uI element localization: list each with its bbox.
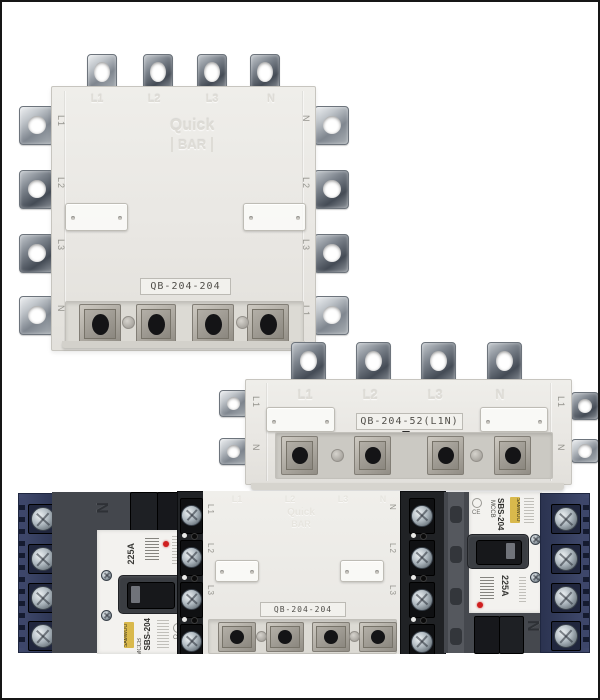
terminal-teeth	[19, 498, 25, 648]
breaker-model-label: SBS-204	[496, 498, 505, 530]
side-terminal-label: L2	[301, 177, 311, 189]
side-terminal-label: L2	[388, 543, 397, 554]
indicator-dot	[182, 533, 187, 538]
rating-label: 225A	[500, 575, 510, 597]
brand-tag: SAMWOO	[510, 497, 520, 523]
face-screw	[101, 610, 112, 621]
guide-dot	[256, 631, 267, 642]
middle-device-body: L1 L2 L3 N L1 N L1 N QB-204-52(L1N)	[245, 379, 572, 485]
side-tab	[450, 628, 462, 645]
emboss-terminal-label: N	[259, 93, 283, 105]
fine-print-lines	[157, 620, 169, 648]
screw-terminal	[411, 547, 433, 569]
port-hole	[230, 630, 244, 644]
connector-port	[266, 622, 304, 652]
lug-hole	[94, 62, 110, 82]
screw-terminal	[181, 505, 202, 526]
right-lug-column	[400, 491, 446, 654]
side-terminal-label: L3	[206, 585, 215, 596]
screw-terminal	[554, 586, 578, 610]
port-hole	[505, 447, 521, 464]
trip-indicator-led	[477, 602, 483, 608]
lug-hole	[496, 351, 513, 371]
side-terminal-label: L2	[206, 543, 215, 554]
emboss-brand-line1: Quick	[266, 507, 336, 518]
connector-port	[494, 436, 531, 475]
fine-print-lines	[519, 577, 526, 602]
port-hole	[438, 447, 454, 464]
cert-mark: CE	[472, 497, 482, 517]
lug-hole	[150, 62, 166, 82]
cert-label: CE	[472, 510, 480, 516]
emboss-terminal-label: N	[485, 387, 515, 402]
lug-hole	[578, 444, 592, 458]
terminal-lug	[19, 170, 54, 209]
clip-pin	[249, 216, 253, 220]
side-terminal-label: L1	[206, 504, 215, 515]
side-terminal-label: L1	[56, 115, 66, 127]
emboss-terminal-label: L3	[333, 494, 353, 504]
clip-pin	[375, 570, 379, 574]
connector-strip	[275, 432, 553, 479]
terminal-lug	[19, 296, 54, 335]
clip-pin	[250, 570, 254, 574]
lug-hole	[204, 62, 220, 82]
screw-terminal	[554, 507, 578, 531]
terminal-lug	[19, 234, 54, 273]
screw-terminal	[411, 631, 433, 653]
product-photo-frame: L1 L2 L3 N Quick BAR L1 L2 L3 N N L2 L3 …	[0, 0, 600, 700]
indicator-dot	[420, 575, 427, 582]
emboss-terminal-label: L3	[200, 93, 224, 105]
emboss-brand-line2: BAR	[266, 519, 336, 529]
terminal-lug	[356, 342, 391, 384]
clip-pin	[345, 570, 349, 574]
terminal-lug	[250, 54, 280, 90]
emboss-brand-bar: BAR	[171, 137, 213, 152]
terminal-lug	[87, 54, 117, 90]
rating-label: 225A	[126, 543, 136, 565]
breaker-model-label: SBS-204	[143, 618, 152, 650]
indicator-dot	[191, 575, 198, 582]
mounting-clip	[266, 407, 335, 432]
toggle-handle	[476, 540, 522, 565]
middle-device: L1 L2 L3 N L1 N L1 N QB-204-52(L1N)	[2, 332, 600, 492]
breaker-cap	[499, 616, 524, 654]
emboss-terminal-label: L1	[227, 494, 247, 504]
indicator-dot	[182, 575, 187, 580]
side-tab	[450, 588, 462, 605]
side-tab	[450, 546, 462, 563]
mounting-clip	[215, 560, 259, 582]
breaker-cap	[130, 492, 158, 533]
connector-port	[359, 622, 397, 652]
side-terminal-label: L3	[56, 239, 66, 251]
lug-hole	[323, 306, 341, 324]
side-terminal-label: N	[388, 504, 397, 511]
indicator-dot	[411, 575, 416, 580]
terminal-lug	[197, 54, 227, 90]
screw-terminal	[411, 505, 433, 527]
toggle-rating-tag	[131, 586, 140, 603]
connector-port	[218, 622, 256, 652]
terminal-lug	[571, 392, 599, 420]
indicator-dot	[191, 617, 198, 624]
model-label: QB-204-204	[260, 602, 346, 617]
lug-hole	[300, 351, 317, 371]
lug-hole	[227, 397, 240, 410]
trip-indicator-led	[163, 541, 169, 547]
breaker-toggle	[467, 534, 529, 569]
guide-dot	[349, 631, 360, 642]
indicator-dot	[411, 533, 416, 538]
lug-hole	[430, 351, 447, 371]
port-hole	[371, 630, 385, 644]
port-hole	[365, 447, 381, 464]
connector-port	[281, 436, 318, 475]
terminal-lug	[219, 390, 248, 417]
top-device-body: L1 L2 L3 N Quick BAR L1 L2 L3 N N L2 L3 …	[51, 86, 316, 351]
port-hole	[292, 447, 308, 464]
terminal-lug	[143, 54, 173, 90]
screw-terminal	[181, 547, 202, 568]
indicator-dot	[191, 533, 198, 540]
barcode	[145, 538, 159, 562]
breaker-type-label: MCCB	[489, 500, 495, 518]
bottom-assembly: N 225A SAMWOO MCCB SBS-204 CE	[14, 491, 590, 654]
model-label: QB-204-204	[140, 278, 231, 295]
indicator-dot	[411, 617, 416, 622]
left-lug-column	[177, 491, 205, 654]
side-terminal-label: N	[251, 444, 261, 452]
screw-terminal	[181, 589, 202, 610]
clip-pin	[71, 216, 75, 220]
side-terminal-label: L2	[56, 177, 66, 189]
emboss-terminal-label: L1	[85, 93, 109, 105]
side-terminal-label: L3	[388, 585, 397, 596]
emboss-brand-line1: Quick	[152, 117, 232, 135]
screw-terminal	[554, 624, 578, 648]
lug-hole	[323, 244, 341, 262]
terminal-lug	[421, 342, 456, 384]
terminal-lug	[19, 106, 54, 145]
model-label: QB-204-52(L1N)	[356, 413, 463, 430]
emboss-terminal-label: L2	[142, 93, 166, 105]
mounting-clip	[340, 560, 384, 582]
terminal-lug	[314, 234, 349, 273]
toggle-rating-tag	[506, 543, 515, 559]
barcode	[480, 577, 494, 600]
terminal-lug	[314, 296, 349, 335]
face-screw	[101, 570, 112, 581]
right-terminal-block	[540, 493, 590, 653]
clip-pin	[272, 420, 276, 424]
indicator-dot	[420, 617, 427, 624]
clip-pin	[538, 420, 542, 424]
guide-dot	[470, 449, 483, 462]
emboss-terminal-label: L3	[420, 387, 450, 402]
mounting-clip	[243, 203, 306, 231]
lug-hole	[28, 306, 46, 324]
screw-terminal	[554, 547, 578, 571]
brand-tag: SAMWOO	[124, 622, 134, 648]
terminal-lug	[219, 438, 248, 465]
side-terminal-label: L1	[251, 396, 261, 408]
emboss-terminal-label: L2	[280, 494, 300, 504]
lug-hole	[323, 116, 341, 134]
right-breaker: CE SBS-204 MCCB SAMWOO 225A N	[444, 492, 542, 653]
guide-dot	[331, 449, 344, 462]
lug-hole	[365, 351, 382, 371]
clip-pin	[296, 216, 300, 220]
emboss-terminal-label: N	[373, 494, 393, 504]
breaker-toggle	[118, 575, 182, 614]
terminal-lug	[571, 439, 599, 463]
lug-hole	[323, 180, 341, 198]
emboss-brand-line2: BAR	[152, 137, 232, 152]
breaker-cap	[474, 616, 500, 654]
breaker-face: CE SBS-204 MCCB SAMWOO 225A	[469, 492, 542, 613]
terminal-teeth	[583, 498, 589, 648]
fine-print-lines	[524, 498, 534, 524]
center-device: L1 L2 L3 N Quick BAR L1 L2 L3 N N L2 L3 …	[203, 491, 400, 654]
side-terminal-label: N	[556, 444, 566, 452]
terminal-lug	[314, 170, 349, 209]
terminal-lug	[487, 342, 522, 384]
lug-hole	[28, 180, 46, 198]
side-terminal-label: L3	[301, 239, 311, 251]
clip-pin	[486, 420, 490, 424]
terminal-lug	[314, 106, 349, 145]
indicator-dot	[420, 533, 427, 540]
mounting-clip	[480, 407, 548, 432]
emboss-terminal-label: L1	[290, 387, 320, 402]
top-device: L1 L2 L3 N Quick BAR L1 L2 L3 N N L2 L3 …	[2, 2, 600, 362]
side-terminal-label: N	[301, 115, 311, 123]
side-tab	[450, 506, 462, 523]
connector-port	[312, 622, 350, 652]
port-hole	[324, 630, 338, 644]
indicator-dot	[182, 617, 187, 622]
clip-pin	[220, 570, 224, 574]
pole-mark: N	[92, 502, 110, 514]
lug-hole	[227, 445, 240, 458]
cert-ring-icon	[472, 498, 482, 508]
guide-dot	[236, 316, 249, 329]
clip-pin	[118, 216, 122, 220]
lug-hole	[28, 116, 46, 134]
guide-dot	[122, 316, 135, 329]
breaker-side-strip	[448, 492, 464, 653]
panel-seam	[266, 383, 267, 481]
clip-pin	[325, 420, 329, 424]
lug-hole	[578, 399, 592, 413]
screw-terminal	[181, 631, 202, 652]
connector-port	[354, 436, 391, 475]
screw-terminal	[411, 589, 433, 611]
terminal-lug	[291, 342, 326, 384]
connector-port	[427, 436, 464, 475]
port-hole	[278, 630, 292, 644]
mounting-clip	[65, 203, 128, 231]
connector-strip	[208, 619, 397, 654]
strip-base	[251, 483, 564, 490]
lug-hole	[257, 62, 273, 82]
side-terminal-label: L1	[556, 396, 566, 408]
emboss-terminal-label: L2	[355, 387, 385, 402]
lug-hole	[28, 244, 46, 262]
